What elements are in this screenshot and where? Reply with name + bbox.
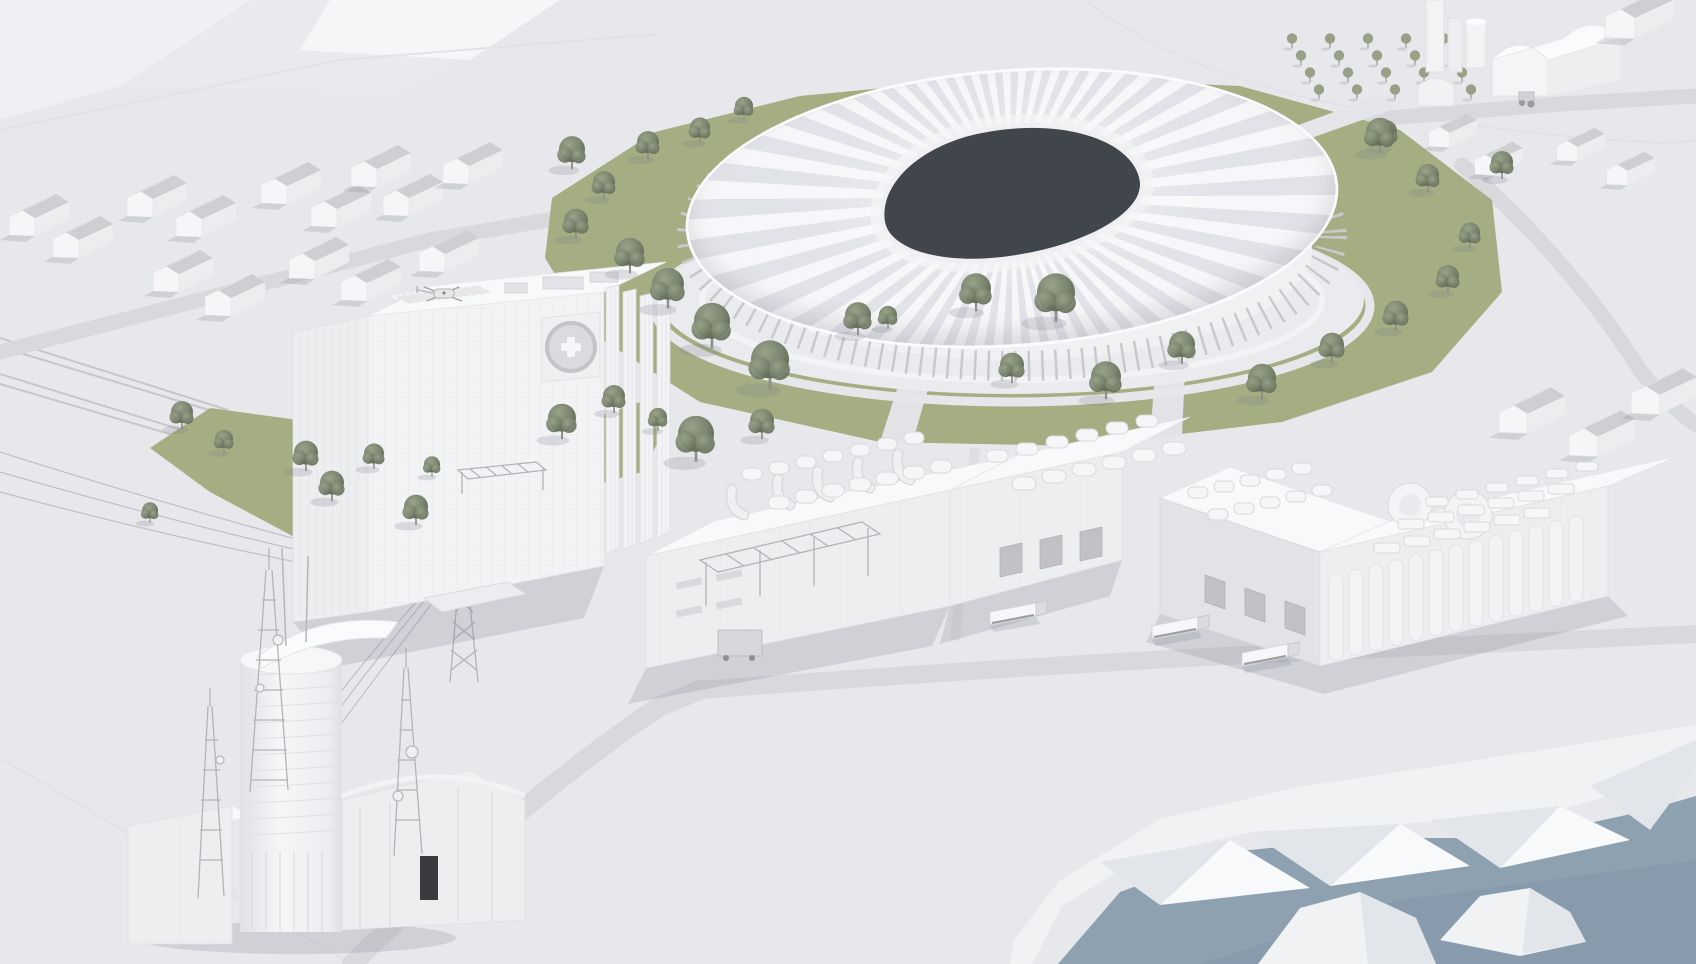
roof-vent: [1488, 498, 1514, 508]
tree: [663, 416, 715, 470]
roof-vent: [822, 484, 844, 497]
roof-vent: [1132, 449, 1156, 462]
silo: [1349, 569, 1363, 655]
roof-vent: [1266, 469, 1286, 480]
roof-vent: [1486, 483, 1508, 492]
roof-vent: [1576, 462, 1598, 471]
silo: [1529, 526, 1543, 612]
roof-vent: [1374, 543, 1400, 553]
roof-vent: [877, 438, 897, 450]
roof-vent: [769, 462, 789, 474]
tree: [1079, 361, 1122, 406]
roof-vent: [1260, 497, 1280, 508]
roof-vent: [849, 478, 871, 491]
tree: [208, 430, 234, 457]
roof-vent: [1548, 484, 1574, 494]
foreground-layer: [0, 0, 1696, 964]
roof-vent: [1494, 515, 1520, 525]
tree: [1158, 331, 1195, 370]
roof-vent: [1240, 475, 1260, 486]
tree: [1355, 118, 1395, 160]
tree: [1482, 151, 1514, 184]
silo: [1469, 540, 1483, 626]
roof-vent: [823, 450, 843, 462]
roof-vent: [1518, 491, 1544, 501]
tree: [584, 171, 616, 204]
tree: [990, 353, 1024, 389]
tree: [1408, 164, 1440, 197]
roof-vent: [768, 496, 790, 509]
tree: [1374, 301, 1408, 337]
tree: [728, 97, 754, 124]
roof-vent: [1546, 469, 1568, 478]
roof-vent: [1012, 477, 1036, 490]
silo: [1549, 521, 1563, 607]
roof-vent: [1286, 491, 1306, 502]
roof-vent: [1398, 519, 1424, 529]
roof-vent: [1312, 485, 1332, 496]
roof-vent: [1234, 503, 1254, 514]
silo: [1489, 535, 1503, 621]
silo: [1389, 560, 1403, 646]
tree: [639, 268, 685, 316]
roof-vent: [1426, 497, 1448, 506]
silo: [1329, 574, 1343, 660]
tree: [1452, 222, 1481, 252]
roof-vent: [1042, 470, 1066, 483]
roof-vent: [1208, 509, 1228, 520]
tree: [740, 409, 774, 445]
roof-vent: [1102, 456, 1126, 469]
roof-vent: [930, 460, 952, 473]
roof-vent: [1162, 442, 1186, 455]
roof-vent: [850, 444, 870, 456]
tree: [135, 502, 158, 526]
roof-vent: [1188, 487, 1208, 498]
tree: [834, 302, 871, 341]
tree: [679, 303, 731, 357]
roof-vent: [1292, 463, 1312, 474]
silo: [1449, 545, 1463, 631]
tree: [872, 306, 898, 333]
tree: [1310, 333, 1344, 369]
tree: [554, 209, 588, 245]
tree: [949, 273, 992, 318]
roof-vent: [796, 456, 816, 468]
silo: [1369, 564, 1383, 650]
tree: [1021, 273, 1075, 330]
roof-vent: [876, 472, 898, 485]
hospital-building: [293, 262, 670, 668]
roof-vent: [986, 450, 1008, 462]
roof-vent: [1046, 436, 1068, 448]
roof-vent: [1136, 415, 1158, 427]
factory-complex: [628, 415, 1678, 704]
tree: [628, 131, 660, 164]
render-canvas: [0, 0, 1696, 964]
tree: [682, 117, 711, 147]
roof-vent: [1524, 508, 1550, 518]
tree: [548, 136, 585, 175]
silo: [1509, 530, 1523, 616]
medical-cross-emblem: [542, 312, 600, 382]
silo: [1409, 555, 1423, 641]
roof-vent: [1516, 476, 1538, 485]
roof-vent: [903, 466, 925, 479]
tree: [1237, 364, 1277, 406]
silo: [1569, 516, 1583, 602]
roof-vent: [1016, 443, 1038, 455]
roof-vent: [1072, 463, 1096, 476]
roof-vent: [795, 490, 817, 503]
roof-vent: [1464, 522, 1490, 532]
roof-vent: [742, 468, 762, 480]
container: [718, 630, 762, 661]
roof-vent: [1434, 529, 1460, 539]
roof-vent: [904, 432, 924, 444]
roof-vent: [1458, 505, 1484, 515]
tree: [162, 401, 194, 434]
roof-vent: [1214, 481, 1234, 492]
roof-vent: [1456, 490, 1478, 499]
roof-vent: [1106, 422, 1128, 434]
silo: [1429, 550, 1443, 636]
tree: [735, 340, 789, 397]
roof-vent: [1404, 536, 1430, 546]
roof-vent: [1428, 512, 1454, 522]
tree: [1428, 265, 1460, 298]
roof-vent: [1076, 429, 1098, 441]
